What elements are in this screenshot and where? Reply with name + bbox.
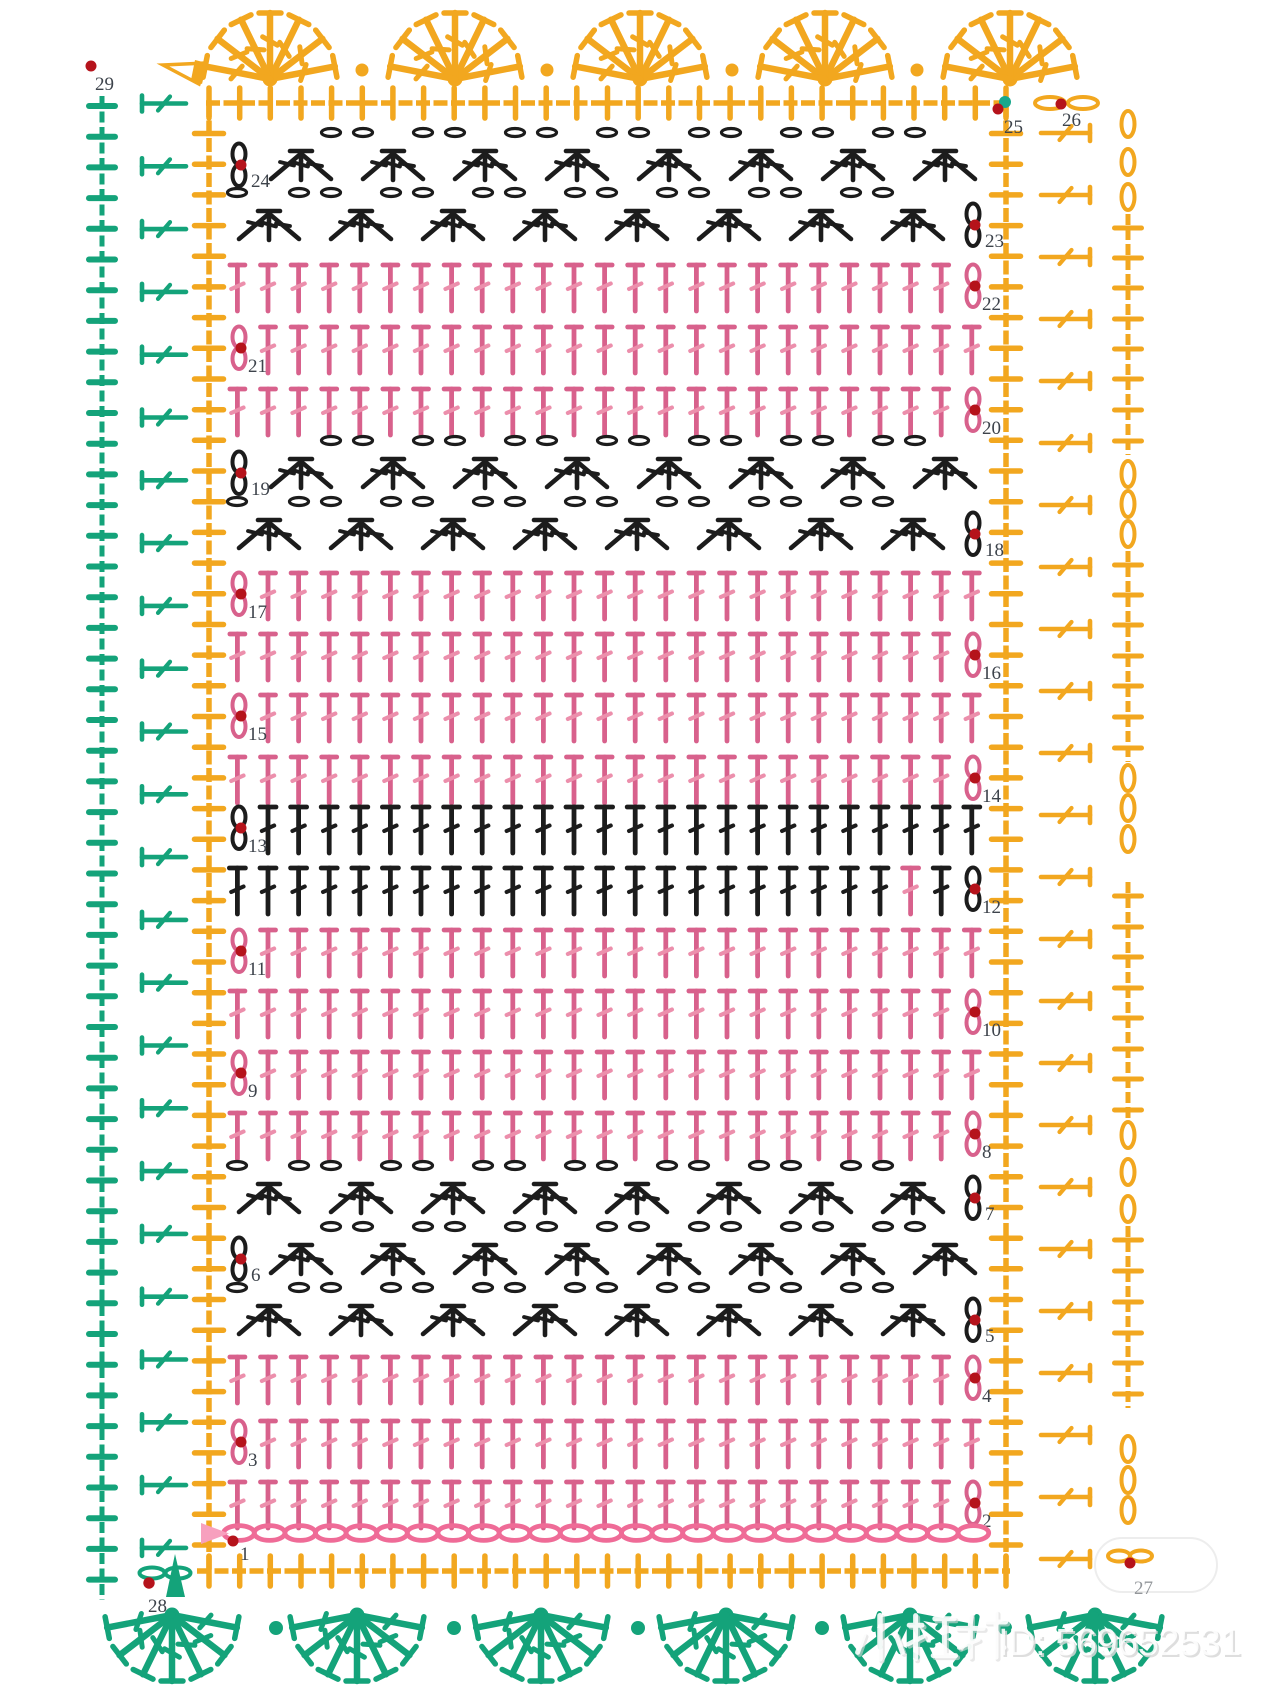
svg-text:13: 13	[248, 836, 267, 857]
svg-text:29: 29	[95, 74, 114, 95]
svg-text:23: 23	[985, 231, 1004, 252]
svg-text:ID: 569652531: ID: 569652531	[998, 1622, 1241, 1664]
svg-text:15: 15	[248, 724, 267, 745]
svg-text:22: 22	[982, 294, 1001, 315]
svg-text:6: 6	[251, 1265, 261, 1286]
svg-text:8: 8	[982, 1142, 992, 1163]
svg-text:16: 16	[982, 663, 1001, 684]
svg-text:10: 10	[982, 1020, 1001, 1041]
svg-text:21: 21	[248, 356, 267, 377]
svg-text:26: 26	[1062, 110, 1081, 131]
svg-text:20: 20	[982, 418, 1001, 439]
svg-text:11: 11	[248, 959, 266, 980]
svg-text:1: 1	[240, 1544, 250, 1565]
svg-text:25: 25	[1004, 117, 1023, 138]
svg-text:9: 9	[248, 1081, 258, 1102]
svg-text:5: 5	[985, 1326, 995, 1347]
svg-text:18: 18	[985, 540, 1004, 561]
svg-text:7: 7	[985, 1204, 995, 1225]
svg-text:24: 24	[251, 171, 271, 192]
svg-text:19: 19	[251, 479, 270, 500]
svg-text:27: 27	[1134, 1578, 1153, 1599]
svg-text:12: 12	[982, 897, 1001, 918]
svg-text:3: 3	[248, 1450, 258, 1471]
svg-text:17: 17	[248, 602, 267, 623]
svg-text:14: 14	[982, 786, 1002, 807]
svg-text:4: 4	[982, 1386, 992, 1407]
